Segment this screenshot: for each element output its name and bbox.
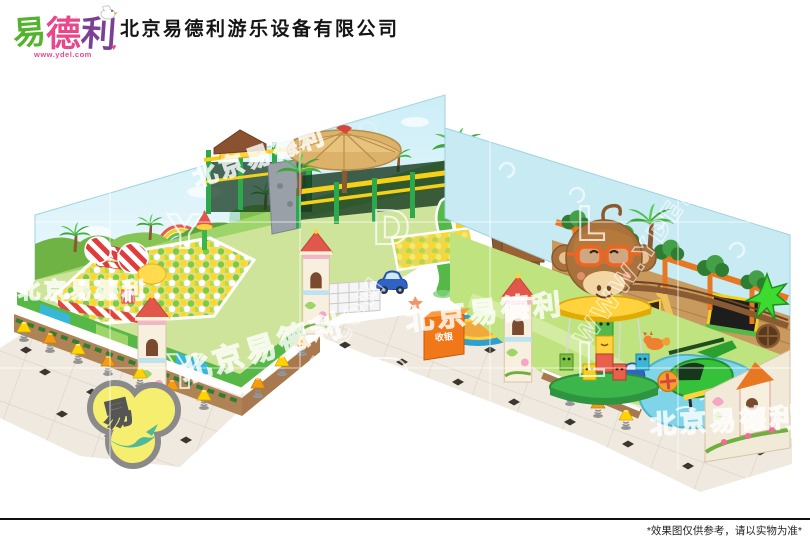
footer-divider [0, 518, 810, 520]
company-logo: 易 德 利 ♥ www.ydel.com [10, 4, 122, 62]
popcorn-bucket [122, 285, 134, 304]
watermark-text: 北京易德利 [699, 116, 810, 164]
logo-char-de: 德 [46, 15, 81, 54]
company-name: 北京易德利游乐设备有限公司 [120, 14, 400, 41]
header: 易 德 利 ♥ www.ydel.com 北京易德利游乐设备有限公司 [0, 0, 810, 60]
logo-url: www.ydel.com [33, 50, 92, 59]
logo-char-yi: 易 [12, 13, 48, 52]
cashier-sign: 收银 [435, 330, 455, 342]
starfish [408, 296, 423, 310]
cubby-shelf [328, 280, 380, 314]
round-window [757, 325, 779, 347]
disclaimer-note: *效果图仅供参考，请以实物为准* [647, 523, 802, 538]
cashier-desk: 收银 [424, 308, 470, 360]
carousel-totem [596, 318, 613, 372]
playground-render: 收银 易 Y D L Y D L 北京易德利 北京易德利 北京易德利 北京易德利… [0, 0, 810, 540]
heart-icon: ♥ [111, 42, 116, 52]
logo-bubble-text: 易 德 利 [12, 13, 118, 55]
